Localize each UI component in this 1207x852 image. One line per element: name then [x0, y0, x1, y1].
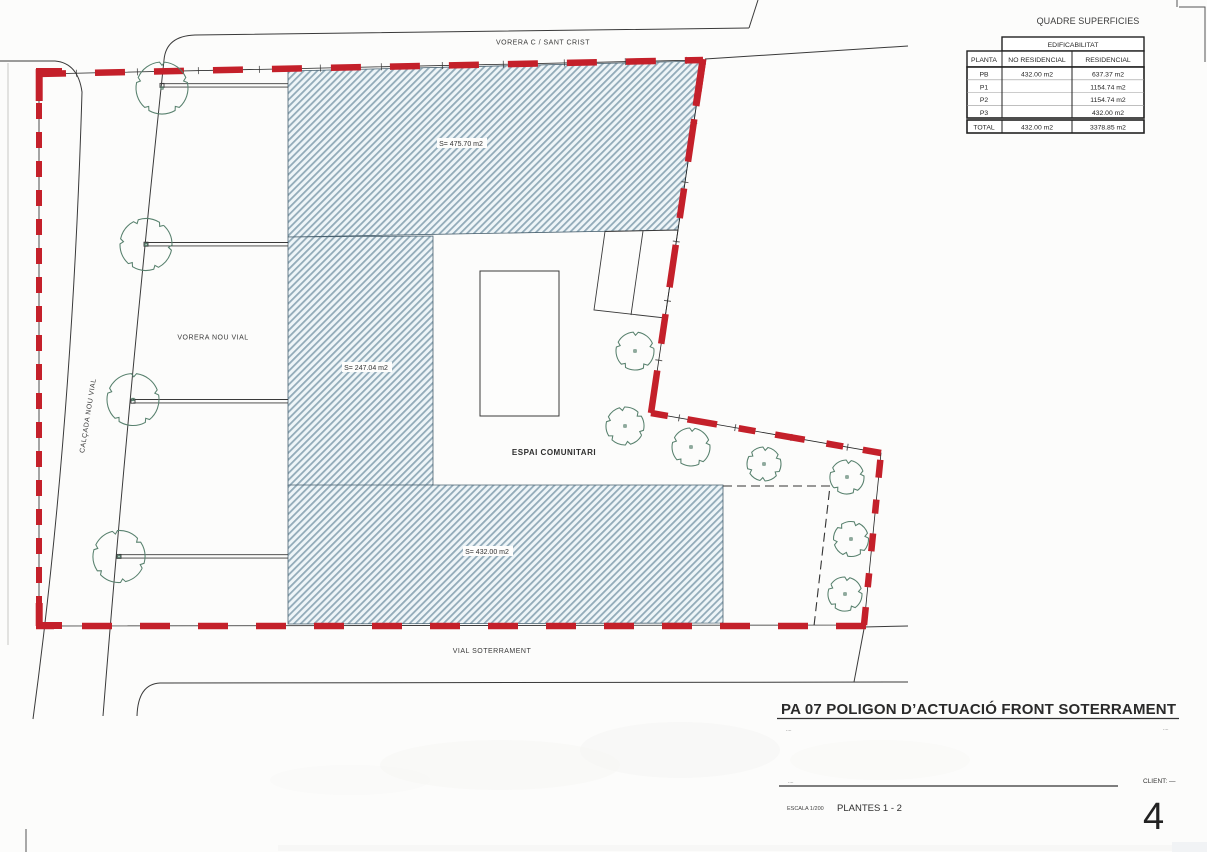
svg-text:CLIENT: —: CLIENT: — — [1143, 778, 1176, 785]
svg-text:RESIDENCIAL: RESIDENCIAL — [1085, 57, 1131, 64]
svg-text:S= 475.70 m2: S= 475.70 m2 — [439, 141, 483, 148]
svg-text:QUADRE SUPERFICIES: QUADRE SUPERFICIES — [1037, 16, 1140, 26]
svg-text:ESCALA 1/200: ESCALA 1/200 — [787, 806, 824, 812]
svg-text:PB: PB — [979, 72, 989, 79]
svg-text:432.00 m2: 432.00 m2 — [1092, 110, 1124, 117]
svg-text:ESPAI COMUNITARI: ESPAI COMUNITARI — [512, 448, 596, 457]
svg-text:VIAL SOTERRAMENT: VIAL SOTERRAMENT — [453, 648, 532, 655]
svg-text:1154.74 m2: 1154.74 m2 — [1090, 97, 1126, 104]
svg-text:....: .... — [1163, 726, 1169, 732]
svg-text:EDIFICABILITAT: EDIFICABILITAT — [1048, 42, 1099, 49]
svg-text:P3: P3 — [980, 110, 989, 117]
svg-text:432.00 m2: 432.00 m2 — [1021, 125, 1053, 132]
svg-text:....: .... — [788, 779, 794, 785]
svg-text:432.00 m2: 432.00 m2 — [1021, 72, 1053, 79]
svg-text:PLANTA: PLANTA — [971, 57, 997, 64]
svg-text:TOTAL: TOTAL — [973, 125, 994, 132]
svg-text:1154.74 m2: 1154.74 m2 — [1090, 84, 1126, 91]
svg-text:VORERA C / SANT CRIST: VORERA C / SANT CRIST — [496, 40, 590, 47]
svg-text:VORERA NOU VIAL: VORERA NOU VIAL — [177, 335, 248, 342]
svg-text:PLANTES 1 - 2: PLANTES 1 - 2 — [837, 803, 902, 814]
svg-text:P1: P1 — [980, 84, 989, 91]
svg-text:PA 07 POLIGON D’ACTUACIÓ FRONT: PA 07 POLIGON D’ACTUACIÓ FRONT SOTERRAME… — [781, 700, 1176, 718]
svg-text:S= 247.04 m2: S= 247.04 m2 — [344, 365, 388, 372]
svg-text:....: .... — [786, 727, 792, 733]
svg-text:P2: P2 — [980, 97, 989, 104]
svg-text:NO RESIDENCIAL: NO RESIDENCIAL — [1008, 57, 1066, 64]
svg-text:4: 4 — [1143, 796, 1164, 838]
svg-text:3378.85 m2: 3378.85 m2 — [1090, 125, 1126, 132]
svg-text:S= 432.00 m2: S= 432.00 m2 — [465, 549, 509, 556]
svg-text:637.37 m2: 637.37 m2 — [1092, 72, 1124, 79]
